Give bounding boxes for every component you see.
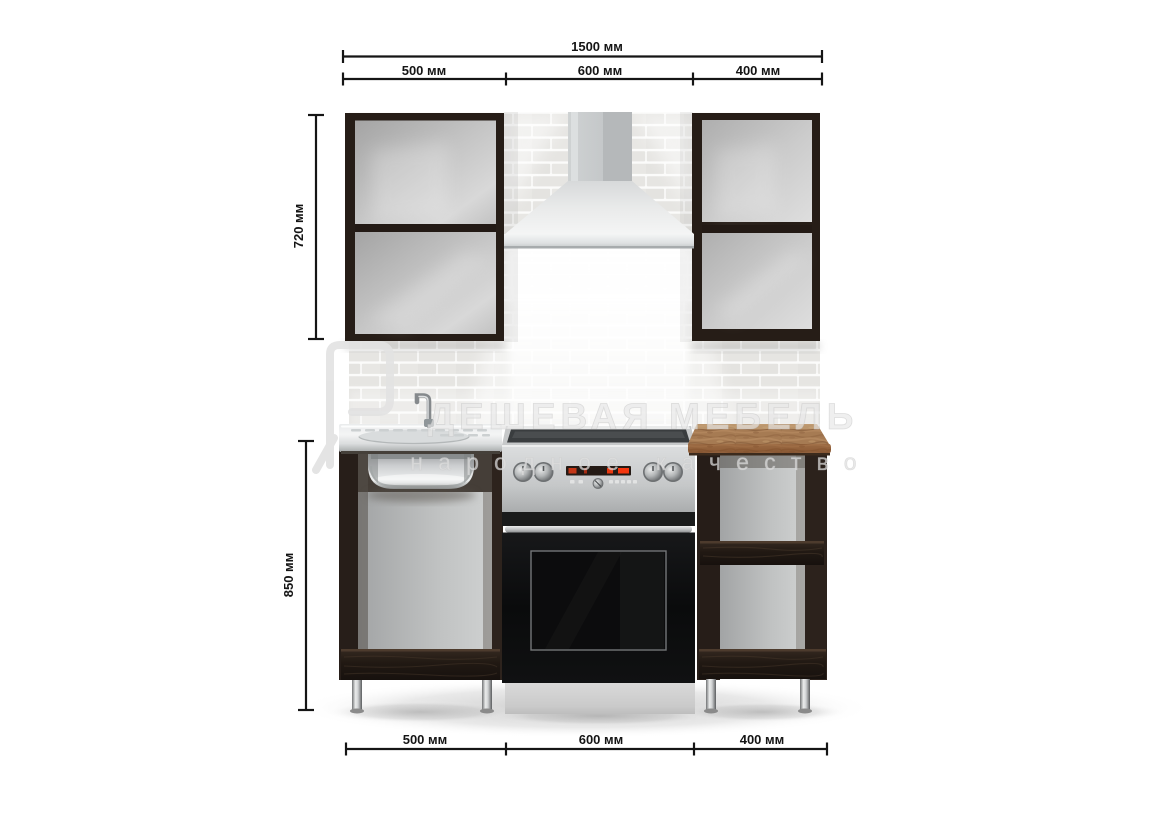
svg-text:850 мм: 850 мм	[281, 553, 296, 598]
svg-text:500 мм: 500 мм	[403, 732, 448, 747]
svg-text:народное качество: народное качество	[410, 449, 871, 475]
svg-text:500 мм: 500 мм	[402, 63, 447, 78]
svg-text:600 мм: 600 мм	[578, 63, 623, 78]
svg-text:600 мм: 600 мм	[579, 732, 624, 747]
svg-text:720 мм: 720 мм	[291, 204, 306, 249]
svg-text:400 мм: 400 мм	[736, 63, 781, 78]
svg-text:400 мм: 400 мм	[740, 732, 785, 747]
svg-text:ДЕШЕВАЯ МЕБЕЛЬ: ДЕШЕВАЯ МЕБЕЛЬ	[428, 396, 859, 437]
svg-text:1500 мм: 1500 мм	[571, 39, 623, 54]
